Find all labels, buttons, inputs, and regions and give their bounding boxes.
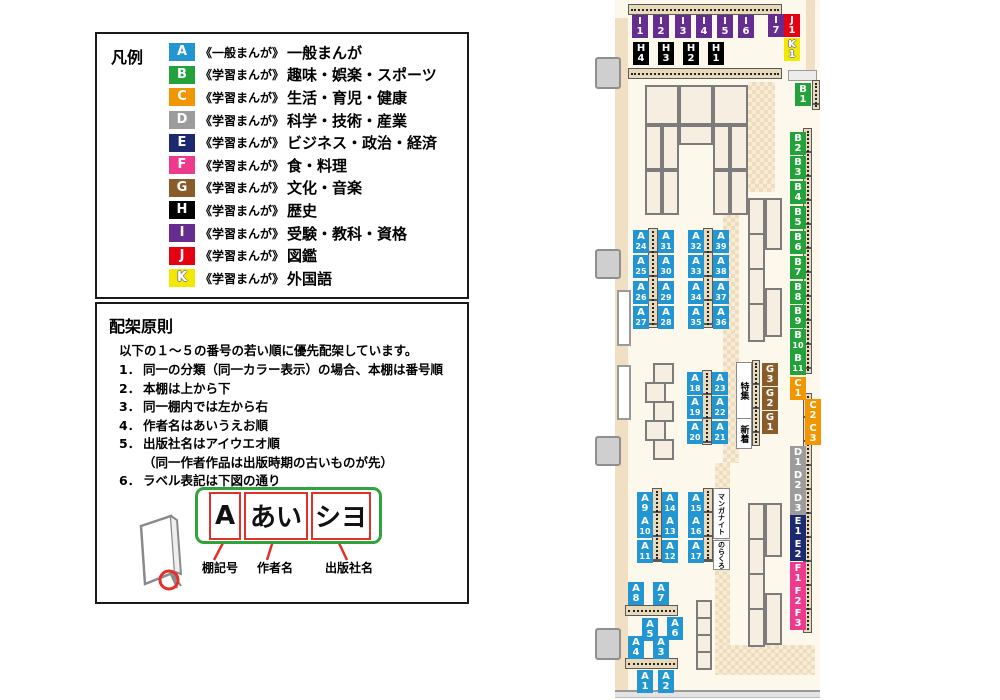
shelf-label-A21: A21 xyxy=(712,421,728,444)
shelf-label-B7: B7 xyxy=(790,256,806,279)
rule-item: 1．同一の分類（同一カラー表示）の場合、本棚は番号順 xyxy=(119,361,443,380)
legend-row: J《学習まんが》図鑑 xyxy=(169,244,463,267)
shelf-label-G1: G1 xyxy=(762,411,778,434)
rule-text: 同一棚内では左から右 xyxy=(143,398,268,417)
shelf-label-H4: H4 xyxy=(633,42,649,65)
rule-item: 5．出版社名はアイウエオ順 xyxy=(119,435,443,454)
rule-text: 出版社名はアイウエオ順 xyxy=(143,435,280,454)
legend-row: C《学習まんが》生活・育児・健康 xyxy=(169,86,463,109)
shelf-label-A18: A18 xyxy=(687,372,703,395)
rule-item: 3．同一棚内では左から右 xyxy=(119,398,443,417)
shelf-label-D1: D1 xyxy=(790,446,806,469)
shelf-label-B6: B6 xyxy=(790,231,806,254)
shelf-label-A36: A36 xyxy=(713,306,729,329)
map-text-box: のらくろ xyxy=(713,540,730,570)
rule-text: 本棚は上から下 xyxy=(143,380,231,399)
legend-prefix: 《学習まんが》 xyxy=(200,134,284,151)
legend-label: 外国語 xyxy=(287,268,332,289)
shelf-label-F3: F3 xyxy=(790,607,806,630)
shelf-label-A2: A2 xyxy=(658,670,674,693)
shelf-label-A1: A1 xyxy=(637,670,653,693)
category-chip-J: J xyxy=(169,247,195,265)
shelf-label-A26: A26 xyxy=(633,281,649,304)
shelf-label-F1: F1 xyxy=(790,562,806,585)
shelf-label-A25: A25 xyxy=(633,255,649,278)
legend-row: E《学習まんが》ビジネス・政治・経済 xyxy=(169,131,463,154)
legend-row: A《一般まんが》一般まんが xyxy=(169,41,463,64)
shelf-label-A19: A19 xyxy=(687,396,703,419)
legend-prefix: 《学習まんが》 xyxy=(200,202,284,219)
legend-label: 生活・育児・健康 xyxy=(287,87,407,108)
legend-label: 図鑑 xyxy=(287,245,317,266)
category-chip-C: C xyxy=(169,88,195,106)
rules-title: 配架原則 xyxy=(109,313,173,337)
category-chip-B: B xyxy=(169,66,195,84)
map-text-box: マンガナイト xyxy=(713,488,730,539)
book-icon xyxy=(141,516,181,589)
legend-row: G《学習まんが》文化・音楽 xyxy=(169,177,463,200)
legend-prefix: 《一般まんが》 xyxy=(200,44,284,61)
shelf-label-A37: A37 xyxy=(713,281,729,304)
shelf-label-A32: A32 xyxy=(688,230,704,253)
shelf-label-A8: A8 xyxy=(628,582,644,605)
legend-label: 一般まんが xyxy=(287,42,362,63)
shelf-label-A15: A15 xyxy=(688,492,704,515)
legend-prefix: 《学習まんが》 xyxy=(200,66,284,83)
shelf-label-C2: C2 xyxy=(805,399,821,422)
category-chip-A: A xyxy=(169,43,195,61)
rule-number: 5． xyxy=(119,435,143,454)
rule-number: 2． xyxy=(119,380,143,399)
shelf-label-B11: B11 xyxy=(790,352,806,375)
publisher-box: シヨ xyxy=(311,492,371,540)
rules-intro: 以下の１～５の番号の若い順に優先配架しています。 xyxy=(119,340,417,359)
legend-label: 科学・技術・産業 xyxy=(287,110,407,131)
shelf-label-A24: A24 xyxy=(633,230,649,253)
category-chip-F: F xyxy=(169,156,195,174)
shelf-label-A6: A6 xyxy=(667,617,683,640)
shelf-label-J1: J1 xyxy=(784,14,800,37)
shelf-labels-layer: I1I2I3I4I5I6I7J1K1H4H3H2H1B1B2B3B4B5B6B7… xyxy=(590,0,830,697)
legend-prefix: 《学習まんが》 xyxy=(200,157,284,174)
floor-map: I1I2I3I4I5I6I7J1K1H4H3H2H1B1B2B3B4B5B6B7… xyxy=(590,0,830,697)
shelf-label-A11: A11 xyxy=(637,540,653,563)
category-chip-G: G xyxy=(169,179,195,197)
shelf-label-A4: A4 xyxy=(628,636,644,659)
rule-item: 2．本棚は上から下 xyxy=(119,380,443,399)
map-text-box: 新着 xyxy=(736,418,752,449)
shelf-label-A22: A22 xyxy=(712,396,728,419)
legend-prefix: 《学習まんが》 xyxy=(200,112,284,129)
legend-prefix: 《学習まんが》 xyxy=(200,179,284,196)
shelf-label-A39: A39 xyxy=(713,230,729,253)
shelf-label-E2: E2 xyxy=(790,538,806,561)
shelf-label-G3: G3 xyxy=(762,363,778,386)
shelf-label-F2: F2 xyxy=(790,585,806,608)
shelf-label-I5: I5 xyxy=(717,15,733,38)
shelf-label-I7: I7 xyxy=(768,14,784,37)
caption-publisher: 出版社名 xyxy=(325,559,373,576)
shelf-label-A30: A30 xyxy=(658,255,674,278)
legend-label: 歴史 xyxy=(287,200,317,221)
legend-rows: A《一般まんが》一般まんが B《学習まんが》趣味・娯楽・スポーツ C《学習まんが… xyxy=(169,41,463,290)
shelf-label-A20: A20 xyxy=(687,421,703,444)
shelf-label-A35: A35 xyxy=(688,306,704,329)
rule-item: 4．作者名はあいうえお順 xyxy=(119,417,443,436)
legend-label: 食・料理 xyxy=(287,155,347,176)
legend-panel: 凡例 A《一般まんが》一般まんが B《学習まんが》趣味・娯楽・スポーツ C《学習… xyxy=(95,32,469,299)
shelf-label-C1: C1 xyxy=(790,377,806,400)
legend-row: H《学習まんが》歴史 xyxy=(169,199,463,222)
shelf-label-I2: I2 xyxy=(653,15,669,38)
legend-row: K《学習まんが》外国語 xyxy=(169,267,463,290)
shelf-label-A12: A12 xyxy=(662,540,678,563)
rule-subtext: （同一作者作品は出版時期の古いものが先） xyxy=(143,454,443,473)
shelf-code-box: A xyxy=(209,492,241,540)
label-example-box: A あい シヨ xyxy=(195,487,382,544)
shelf-label-A7: A7 xyxy=(653,582,669,605)
caption-shelf-code: 棚記号 xyxy=(202,559,238,576)
shelf-label-D3: D3 xyxy=(790,492,806,515)
legend-prefix: 《学習まんが》 xyxy=(200,225,284,242)
category-chip-I: I xyxy=(169,224,195,242)
rule-number: 3． xyxy=(119,398,143,417)
shelf-label-B2: B2 xyxy=(790,132,806,155)
shelf-label-B1: B1 xyxy=(795,83,811,106)
rule-text: 作者名はあいうえお順 xyxy=(143,417,268,436)
shelf-label-D2: D2 xyxy=(790,469,806,492)
shelf-label-A17: A17 xyxy=(688,540,704,563)
shelf-label-B4: B4 xyxy=(790,181,806,204)
legend-row: B《学習まんが》趣味・娯楽・スポーツ xyxy=(169,64,463,87)
page: 凡例 A《一般まんが》一般まんが B《学習まんが》趣味・娯楽・スポーツ C《学習… xyxy=(0,0,1000,700)
shelf-label-H3: H3 xyxy=(658,42,674,65)
shelf-label-A16: A16 xyxy=(688,515,704,538)
legend-prefix: 《学習まんが》 xyxy=(200,89,284,106)
shelf-label-A14: A14 xyxy=(662,492,678,515)
rule-text: 同一の分類（同一カラー表示）の場合、本棚は番号順 xyxy=(143,361,443,380)
rules-list: 1．同一の分類（同一カラー表示）の場合、本棚は番号順 2．本棚は上から下 3．同… xyxy=(119,361,443,491)
category-chip-D: D xyxy=(169,111,195,129)
legend-label: 趣味・娯楽・スポーツ xyxy=(287,64,437,85)
shelf-label-A38: A38 xyxy=(713,255,729,278)
shelf-label-B9: B9 xyxy=(790,305,806,328)
legend-title: 凡例 xyxy=(111,44,143,68)
shelf-label-K1: K1 xyxy=(784,38,800,61)
shelf-label-H2: H2 xyxy=(683,42,699,65)
shelf-label-A34: A34 xyxy=(688,281,704,304)
shelf-label-A29: A29 xyxy=(658,281,674,304)
shelf-label-A3: A3 xyxy=(653,636,669,659)
shelf-label-B5: B5 xyxy=(790,206,806,229)
shelf-label-I6: I6 xyxy=(738,15,754,38)
legend-row: D《学習まんが》科学・技術・産業 xyxy=(169,109,463,132)
rule-number: 1． xyxy=(119,361,143,380)
shelf-label-B3: B3 xyxy=(790,156,806,179)
shelf-label-H1: H1 xyxy=(708,42,724,65)
shelf-label-A10: A10 xyxy=(637,515,653,538)
shelf-label-A23: A23 xyxy=(712,372,728,395)
legend-label: 文化・音楽 xyxy=(287,177,362,198)
shelf-label-A9: A9 xyxy=(637,492,653,515)
shelf-label-B10: B10 xyxy=(790,329,806,352)
category-chip-E: E xyxy=(169,134,195,152)
shelf-label-I3: I3 xyxy=(675,15,691,38)
caption-author: 作者名 xyxy=(257,559,293,576)
shelf-label-A28: A28 xyxy=(658,306,674,329)
shelf-label-I1: I1 xyxy=(632,15,648,38)
shelf-label-C3: C3 xyxy=(805,422,821,445)
rule-number: 6． xyxy=(119,472,143,491)
shelf-label-A33: A33 xyxy=(688,255,704,278)
rules-panel: 配架原則 以下の１～５の番号の若い順に優先配架しています。 1．同一の分類（同一… xyxy=(95,302,469,604)
shelf-label-I4: I4 xyxy=(696,15,712,38)
legend-label: 受験・教科・資格 xyxy=(287,223,407,244)
legend-row: I《学習まんが》受験・教科・資格 xyxy=(169,222,463,245)
map-text-box: 特集 xyxy=(736,362,752,419)
legend-row: F《学習まんが》食・料理 xyxy=(169,154,463,177)
shelf-label-E1: E1 xyxy=(790,515,806,538)
legend-prefix: 《学習まんが》 xyxy=(200,247,284,264)
legend-prefix: 《学習まんが》 xyxy=(200,270,284,287)
category-chip-H: H xyxy=(169,201,195,219)
shelf-label-A13: A13 xyxy=(662,515,678,538)
shelf-label-B8: B8 xyxy=(790,281,806,304)
author-box: あい xyxy=(244,492,308,540)
legend-label: ビジネス・政治・経済 xyxy=(287,132,437,153)
shelf-label-A27: A27 xyxy=(633,306,649,329)
shelf-label-G2: G2 xyxy=(762,387,778,410)
category-chip-K: K xyxy=(169,269,195,287)
shelf-label-A31: A31 xyxy=(658,230,674,253)
rule-number: 4． xyxy=(119,417,143,436)
